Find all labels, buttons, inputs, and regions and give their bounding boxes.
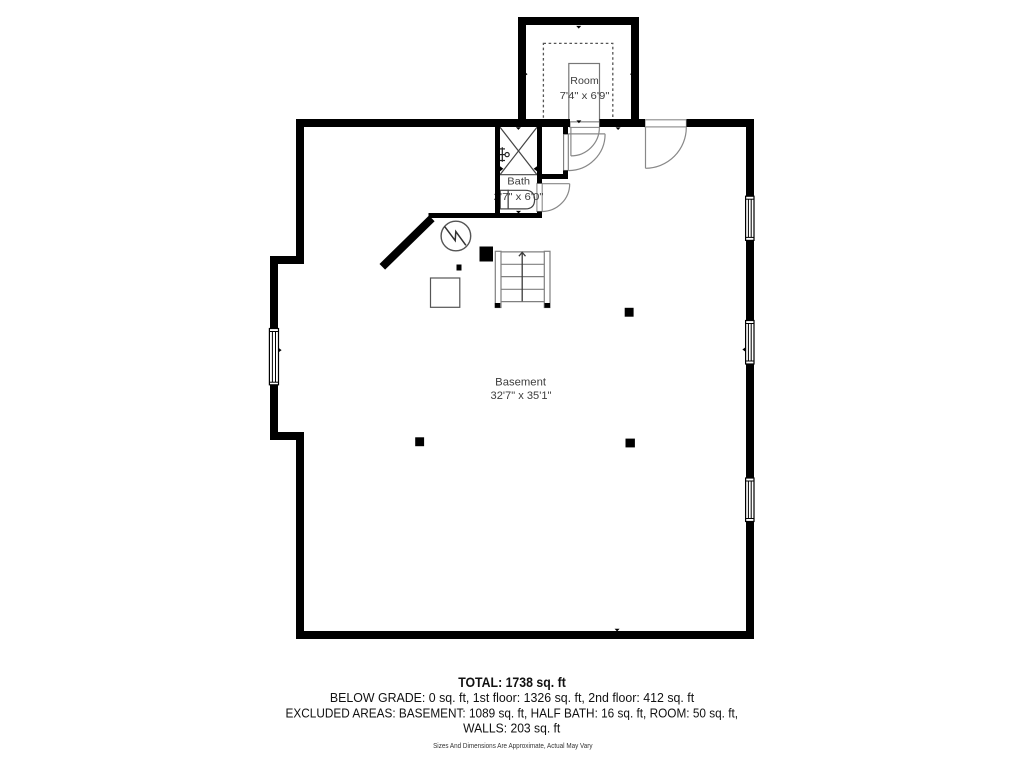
svg-text:2'7" x 6'0": 2'7" x 6'0" bbox=[494, 191, 544, 203]
svg-text:EXCLUDED AREAS: BASEMENT: 1089: EXCLUDED AREAS: BASEMENT: 1089 sq. ft, H… bbox=[286, 706, 739, 721]
svg-text:BELOW GRADE: 0 sq. ft, 1st flo: BELOW GRADE: 0 sq. ft, 1st floor: 1326 s… bbox=[330, 690, 695, 705]
svg-text:7'4" x 6'9": 7'4" x 6'9" bbox=[560, 90, 610, 102]
svg-text:Room: Room bbox=[570, 75, 599, 87]
svg-text:Bath: Bath bbox=[507, 176, 530, 188]
svg-text:Basement: Basement bbox=[495, 376, 546, 388]
svg-text:Sizes And Dimensions Are Appro: Sizes And Dimensions Are Approximate, Ac… bbox=[433, 741, 593, 750]
svg-text:TOTAL: 1738 sq. ft: TOTAL: 1738 sq. ft bbox=[458, 674, 566, 690]
svg-text:32'7" x 35'1": 32'7" x 35'1" bbox=[491, 390, 552, 402]
svg-text:WALLS: 203 sq. ft: WALLS: 203 sq. ft bbox=[463, 721, 561, 736]
